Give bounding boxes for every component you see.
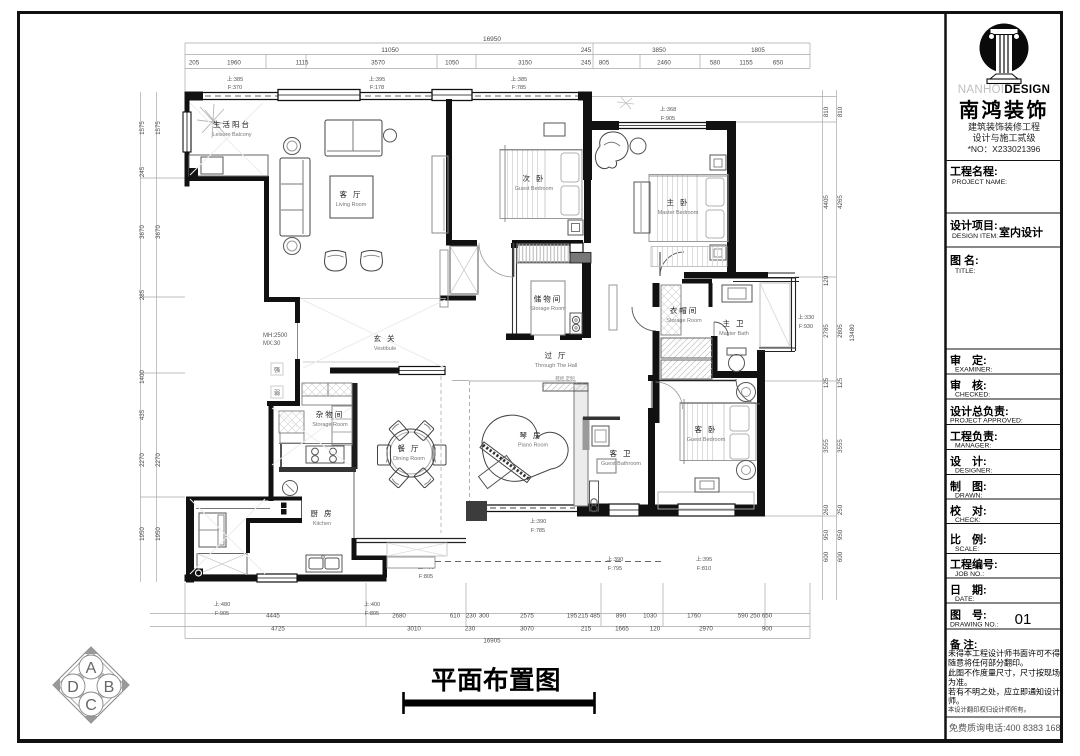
svg-text:4265: 4265 (837, 195, 844, 209)
svg-text:弱: 弱 (274, 390, 280, 397)
svg-text:免费质询电话:400 8383 168: 免费质询电话:400 8383 168 (949, 722, 1061, 733)
svg-text:厨 房: 厨 房 (310, 508, 333, 518)
svg-text:CHECKED:: CHECKED: (955, 392, 990, 399)
svg-text:工程编号:: 工程编号: (950, 557, 998, 571)
svg-text:2460: 2460 (657, 60, 671, 67)
svg-text:南鸿装饰: 南鸿装饰 (959, 98, 1049, 122)
svg-text:*NO：X233021396: *NO：X233021396 (968, 144, 1041, 154)
svg-text:上:385: 上:385 (227, 75, 243, 83)
svg-text:3150: 3150 (518, 60, 532, 67)
svg-text:3670: 3670 (155, 225, 162, 239)
svg-text:590: 590 (738, 613, 749, 620)
svg-text:1050: 1050 (445, 60, 459, 67)
svg-text:125: 125 (837, 377, 844, 388)
svg-text:485: 485 (590, 613, 601, 620)
svg-text:610: 610 (450, 613, 461, 620)
svg-text:1575: 1575 (139, 121, 146, 135)
svg-text:1575: 1575 (155, 121, 162, 135)
svg-text:2575: 2575 (520, 613, 534, 620)
svg-text:餐 厅: 餐 厅 (397, 444, 420, 453)
svg-text:随意将任何部分翻印。: 随意将任何部分翻印。 (948, 658, 1028, 668)
svg-text:日 期:: 日 期: (950, 583, 987, 597)
svg-text:1155: 1155 (739, 60, 753, 67)
svg-text:D: D (67, 679, 79, 696)
svg-text:为准。: 为准。 (948, 677, 972, 687)
svg-text:650: 650 (762, 613, 773, 620)
svg-text:245: 245 (581, 60, 592, 67)
svg-text:Living Room: Living Room (336, 202, 367, 208)
svg-text:PROJECT NAME:: PROJECT NAME: (952, 179, 1007, 186)
svg-text:EXAMINER:: EXAMINER: (955, 367, 993, 374)
svg-text:DESIGNER:: DESIGNER: (955, 468, 993, 475)
svg-text:950: 950 (823, 529, 830, 540)
svg-text:2680: 2680 (392, 613, 406, 620)
svg-text:4405: 4405 (823, 195, 830, 209)
svg-text:Storage Room: Storage Room (530, 306, 566, 312)
svg-text:NANHOIDESIGN: NANHOIDESIGN (958, 84, 1050, 96)
svg-text:650: 650 (773, 60, 784, 67)
svg-text:比 例:: 比 例: (950, 532, 987, 546)
svg-text:Dining Room: Dining Room (393, 456, 425, 462)
svg-text:F:178: F:178 (370, 85, 384, 91)
svg-text:图 号:: 图 号: (950, 609, 987, 622)
svg-text:3570: 3570 (371, 60, 385, 67)
svg-text:玄 关: 玄 关 (373, 333, 396, 343)
svg-text:300: 300 (479, 613, 490, 620)
svg-text:250: 250 (750, 613, 761, 620)
svg-text:上:330: 上:330 (798, 313, 814, 321)
svg-text:客 卧: 客 卧 (694, 424, 717, 434)
svg-text:储物间: 储物间 (534, 294, 563, 304)
svg-text:上:395: 上:395 (696, 555, 712, 563)
svg-text:主 卫: 主 卫 (722, 318, 745, 328)
svg-text:上:368: 上:368 (660, 105, 676, 113)
svg-text:435: 435 (139, 409, 146, 420)
svg-text:950: 950 (837, 529, 844, 540)
svg-text:Kitchen: Kitchen (313, 521, 331, 527)
svg-text:205: 205 (189, 60, 200, 67)
svg-text:DATE:: DATE: (955, 596, 975, 603)
svg-text:F:785: F:785 (512, 85, 526, 91)
svg-text:810: 810 (837, 106, 844, 117)
svg-text:PROJECT APPROVED:: PROJECT APPROVED: (950, 418, 1023, 425)
svg-text:图 名:: 图 名: (950, 253, 979, 267)
svg-text:MX:30: MX:30 (263, 341, 281, 347)
svg-text:215: 215 (578, 613, 589, 620)
svg-text:琴 房: 琴 房 (519, 430, 542, 440)
svg-text:TITLE:: TITLE: (955, 268, 976, 275)
svg-text:1030: 1030 (643, 613, 657, 620)
svg-text:3670: 3670 (139, 225, 146, 239)
svg-text:230: 230 (465, 626, 476, 633)
svg-text:4445: 4445 (266, 613, 280, 620)
svg-text:3850: 3850 (652, 47, 666, 54)
svg-text:此图不作度量尺寸，尺寸按现场: 此图不作度量尺寸，尺寸按现场 (948, 668, 1060, 678)
svg-text:未得本工程设计师书面许可不得: 未得本工程设计师书面许可不得 (948, 648, 1060, 658)
svg-text:Master Bath: Master Bath (719, 331, 749, 337)
svg-text:F:905: F:905 (661, 116, 675, 122)
svg-text:客 厅: 客 厅 (339, 189, 362, 199)
svg-text:2270: 2270 (155, 453, 162, 467)
svg-text:Guest Bedroom: Guest Bedroom (687, 437, 726, 443)
svg-text:Vestibule: Vestibule (374, 346, 396, 352)
svg-text:215: 215 (581, 626, 592, 633)
svg-text:1805: 1805 (751, 47, 765, 54)
svg-text:3555: 3555 (823, 439, 830, 453)
svg-text:DESIGN ITEM:: DESIGN ITEM: (952, 233, 998, 240)
svg-text:Master Bedroom: Master Bedroom (658, 210, 699, 216)
svg-text:4725: 4725 (271, 626, 285, 633)
svg-text:2805: 2805 (837, 324, 844, 338)
svg-text:230: 230 (466, 613, 477, 620)
svg-text:工程名程:: 工程名程: (950, 164, 998, 178)
svg-text:120: 120 (823, 275, 830, 286)
svg-text:Piano Room: Piano Room (518, 443, 549, 449)
svg-text:01: 01 (1015, 611, 1032, 628)
svg-text:1115: 1115 (296, 60, 309, 67)
svg-text:13480: 13480 (849, 324, 856, 342)
svg-text:3010: 3010 (407, 626, 421, 633)
svg-text:JOB NO.:: JOB NO.: (955, 571, 984, 578)
svg-text:客 卫: 客 卫 (609, 448, 632, 458)
svg-text:师。: 师。 (948, 696, 964, 706)
svg-text:1665: 1665 (615, 626, 629, 633)
svg-text:校 对:: 校 对: (950, 504, 987, 518)
svg-text:810: 810 (823, 106, 830, 117)
svg-text:上:395: 上:395 (369, 75, 385, 83)
svg-text:鞋柜 定制: 鞋柜 定制 (555, 375, 575, 382)
svg-text:设 计:: 设 计: (950, 454, 987, 468)
svg-text:F:370: F:370 (228, 85, 242, 91)
svg-text:3070: 3070 (520, 626, 534, 633)
svg-text:245: 245 (581, 47, 592, 54)
svg-text:2270: 2270 (139, 453, 146, 467)
svg-text:Guest Bedroom: Guest Bedroom (515, 186, 554, 192)
svg-text:衣帽间: 衣帽间 (670, 305, 699, 315)
svg-text:F:930: F:930 (799, 324, 813, 330)
svg-text:若有不明之处，应立即通知设计: 若有不明之处，应立即通知设计 (948, 687, 1060, 697)
svg-text:2785: 2785 (823, 324, 830, 338)
svg-text:600: 600 (837, 551, 844, 562)
svg-text:设计项目:: 设计项目: (950, 218, 998, 232)
svg-text:平面布置图: 平面布置图 (431, 666, 561, 695)
svg-text:A: A (86, 660, 97, 677)
svg-text:125: 125 (823, 377, 830, 388)
svg-text:上:480: 上:480 (214, 600, 230, 608)
svg-text:260: 260 (823, 504, 830, 515)
svg-text:CHECK:: CHECK: (955, 517, 981, 524)
svg-text:3555: 3555 (837, 439, 844, 453)
svg-text:上:385: 上:385 (511, 75, 527, 83)
svg-text:Leisure Balcony: Leisure Balcony (212, 132, 251, 138)
svg-text:F:805: F:805 (419, 574, 433, 580)
svg-text:Through The Hall: Through The Hall (535, 363, 577, 369)
svg-text:审 定:: 审 定: (950, 353, 987, 367)
svg-text:285: 285 (139, 289, 146, 300)
svg-text:室内设计: 室内设计 (999, 225, 1043, 239)
svg-text:MH:2500: MH:2500 (263, 333, 288, 339)
svg-text:工程负责:: 工程负责: (950, 429, 998, 443)
svg-text:F:905: F:905 (215, 611, 229, 617)
svg-text:建筑装饰装修工程: 建筑装饰装修工程 (968, 121, 1040, 132)
svg-text:580: 580 (710, 60, 721, 67)
svg-text:强: 强 (274, 367, 280, 374)
svg-text:F:785: F:785 (531, 528, 545, 534)
svg-text:上:400: 上:400 (364, 600, 380, 608)
svg-text:C: C (85, 697, 97, 714)
svg-text:Storage Room: Storage Room (312, 422, 348, 428)
svg-text:Storage Room: Storage Room (666, 318, 702, 324)
svg-text:本设计翻印权归设计师所有。: 本设计翻印权归设计师所有。 (948, 705, 1030, 714)
svg-text:250: 250 (837, 504, 844, 515)
svg-text:SCALE:: SCALE: (955, 546, 979, 553)
svg-text:900: 900 (762, 626, 773, 633)
svg-text:11050: 11050 (381, 47, 399, 54)
svg-text:1760: 1760 (687, 613, 701, 620)
svg-text:制 图:: 制 图: (950, 479, 987, 493)
svg-text:过 厅: 过 厅 (544, 350, 567, 360)
svg-text:DRAWN:: DRAWN: (955, 493, 982, 500)
svg-text:设计总负责:: 设计总负责: (950, 404, 1009, 418)
svg-text:MANAGER:: MANAGER: (955, 443, 991, 450)
svg-text:2970: 2970 (699, 626, 713, 633)
svg-text:245: 245 (139, 166, 146, 177)
svg-text:设计与施工贰级: 设计与施工贰级 (972, 132, 1035, 143)
svg-text:600: 600 (823, 551, 830, 562)
svg-text:1960: 1960 (227, 60, 241, 67)
svg-text:890: 890 (616, 613, 627, 620)
svg-text:1950: 1950 (155, 527, 162, 541)
svg-text:次 卧: 次 卧 (522, 173, 545, 183)
svg-text:B: B (104, 679, 115, 696)
svg-text:F:795: F:795 (608, 566, 622, 572)
svg-text:120: 120 (650, 626, 661, 633)
svg-text:主 卧: 主 卧 (666, 197, 689, 207)
svg-text:195: 195 (567, 613, 578, 620)
svg-text:上:390: 上:390 (530, 517, 546, 525)
svg-text:16950: 16950 (483, 36, 501, 43)
svg-text:生活阳台: 生活阳台 (213, 119, 251, 129)
svg-text:F:810: F:810 (697, 566, 711, 572)
svg-text:16905: 16905 (483, 638, 501, 645)
svg-text:1400: 1400 (139, 370, 146, 384)
svg-text:DRAWING NO.:: DRAWING NO.: (950, 622, 999, 629)
svg-text:F:805: F:805 (365, 611, 379, 617)
svg-text:Guest Bathroom: Guest Bathroom (601, 461, 641, 467)
svg-text:805: 805 (599, 60, 610, 67)
svg-text:杂物间: 杂物间 (316, 409, 345, 419)
svg-text:审 核:: 审 核: (950, 378, 987, 392)
svg-text:1950: 1950 (139, 527, 146, 541)
